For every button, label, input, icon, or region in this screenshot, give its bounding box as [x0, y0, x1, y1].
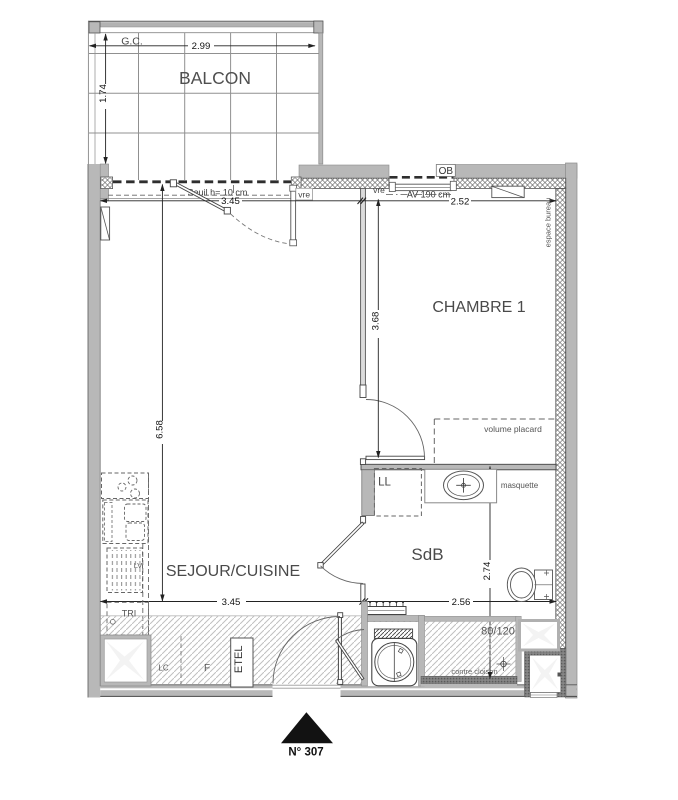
- svg-text:AV 190 cm: AV 190 cm: [407, 190, 450, 200]
- svg-text:2.99: 2.99: [192, 41, 211, 52]
- svg-text:LC: LC: [158, 664, 168, 673]
- svg-text:6.58: 6.58: [155, 420, 166, 439]
- svg-text:N° 307: N° 307: [288, 747, 323, 759]
- svg-text:masquette: masquette: [501, 481, 539, 490]
- svg-text:2.56: 2.56: [452, 597, 471, 608]
- svg-text:CHAMBRE 1: CHAMBRE 1: [432, 299, 525, 316]
- svg-text:3.45: 3.45: [221, 196, 240, 207]
- svg-text:3.45: 3.45: [222, 597, 241, 608]
- svg-text:80/120: 80/120: [481, 626, 515, 638]
- svg-text:volume placard: volume placard: [484, 424, 542, 434]
- svg-text:OB: OB: [439, 166, 454, 177]
- svg-text:ETEL: ETEL: [233, 646, 245, 674]
- svg-text:2.52: 2.52: [451, 196, 470, 207]
- svg-text:vre: vre: [373, 185, 385, 195]
- svg-text:LL: LL: [378, 477, 391, 489]
- svg-text:2.74: 2.74: [482, 561, 493, 580]
- svg-text:SdB: SdB: [411, 545, 443, 564]
- svg-text:vre: vre: [298, 189, 310, 199]
- svg-text:BALCON: BALCON: [179, 68, 251, 88]
- svg-text:LV: LV: [134, 561, 143, 570]
- svg-text:3.68: 3.68: [371, 312, 382, 331]
- svg-text:F: F: [204, 663, 210, 674]
- svg-text:1.74: 1.74: [98, 84, 109, 103]
- svg-text:SEJOUR/CUISINE: SEJOUR/CUISINE: [166, 563, 300, 580]
- svg-text:espace bureau: espace bureau: [544, 198, 553, 248]
- svg-text:TRI: TRI: [122, 609, 137, 619]
